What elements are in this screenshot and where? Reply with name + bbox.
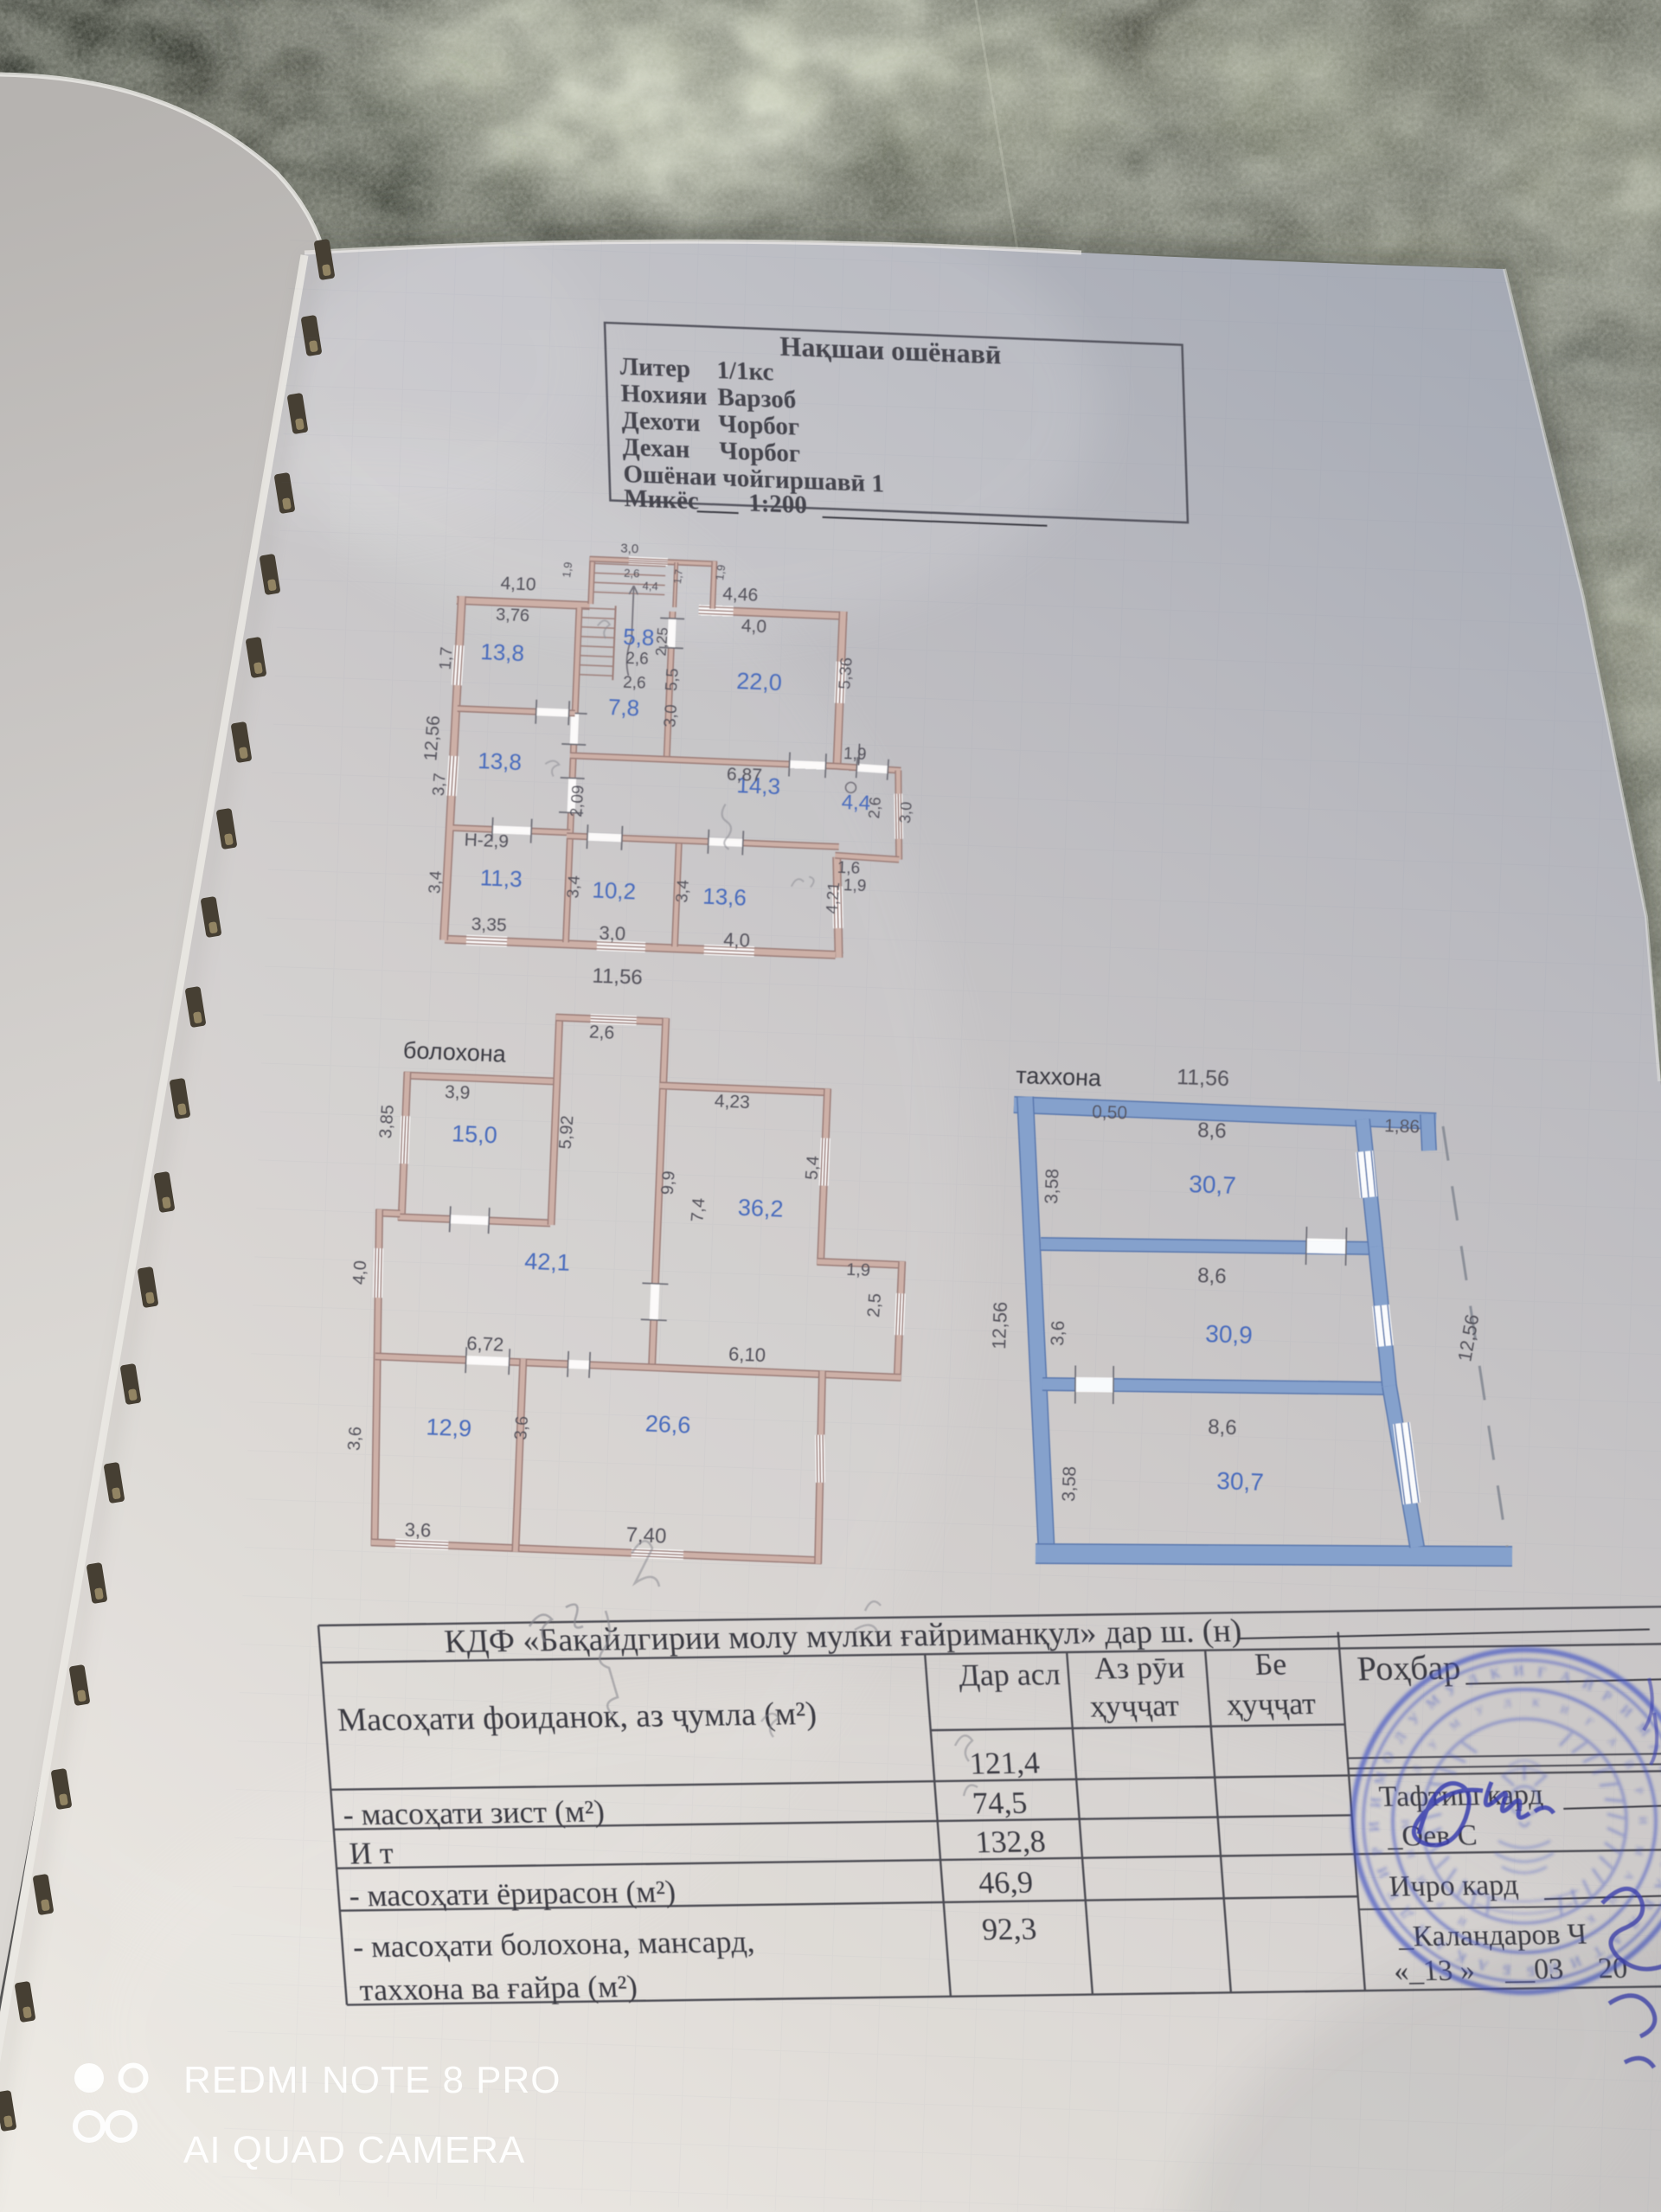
svg-text:6,72: 6,72	[466, 1332, 504, 1356]
svg-text:3,58: 3,58	[1059, 1466, 1080, 1503]
svg-text:26,6: 26,6	[645, 1411, 691, 1439]
svg-text:таххона ва ғайра (м²): таххона ва ғайра (м²)	[358, 1969, 638, 2007]
svg-text:13,8: 13,8	[480, 638, 525, 666]
svg-text:3,4: 3,4	[426, 869, 446, 894]
svg-text:74,5: 74,5	[972, 1786, 1029, 1821]
svg-text:6,10: 6,10	[728, 1343, 766, 1366]
svg-text:ҳуҷҷат: ҳуҷҷат	[1225, 1686, 1317, 1722]
svg-text:10,2: 10,2	[592, 876, 637, 904]
svg-text:3,58: 3,58	[1042, 1169, 1062, 1205]
svg-text:7,40: 7,40	[625, 1523, 667, 1548]
svg-text:1,6: 1,6	[837, 859, 860, 878]
svg-text:12,9: 12,9	[426, 1414, 472, 1441]
svg-text:11,3: 11,3	[479, 864, 523, 892]
svg-text:3,6: 3,6	[1048, 1320, 1068, 1346]
svg-text:11,56: 11,56	[1177, 1065, 1230, 1091]
svg-text:2,6: 2,6	[589, 1023, 615, 1043]
svg-text:AI QUAD CAMERA: AI QUAD CAMERA	[183, 2129, 525, 2171]
svg-text:К: К	[1532, 1696, 1541, 1709]
svg-text:12,56: 12,56	[420, 715, 444, 761]
svg-text:Ғ: Ғ	[1537, 1664, 1547, 1681]
svg-text:- масоҳати ёрирасон (м²): - масоҳати ёрирасон (м²)	[348, 1874, 677, 1913]
svg-text:Аз рӯи: Аз рӯи	[1093, 1650, 1185, 1685]
svg-text:36,2: 36,2	[737, 1195, 784, 1222]
svg-text:М: М	[1399, 1819, 1412, 1830]
svg-text:3,0: 3,0	[896, 801, 915, 824]
svg-text:И: И	[1513, 1662, 1524, 1679]
svg-text:И: И	[1365, 1821, 1382, 1832]
svg-text:1,9: 1,9	[843, 876, 867, 895]
svg-text:30,7: 30,7	[1216, 1467, 1265, 1496]
svg-text:2,6: 2,6	[623, 674, 646, 693]
svg-text:8,6: 8,6	[1197, 1119, 1227, 1143]
svg-text:6,87: 6,87	[727, 765, 763, 786]
svg-text:И: И	[1637, 1817, 1649, 1825]
svg-text:5,92: 5,92	[556, 1115, 578, 1150]
svg-text:2,6: 2,6	[625, 650, 649, 669]
svg-text:30,9: 30,9	[1205, 1320, 1254, 1349]
svg-text:92,3: 92,3	[981, 1911, 1038, 1946]
svg-text:7,8: 7,8	[607, 694, 639, 721]
svg-text:1,86: 1,86	[1384, 1116, 1421, 1137]
svg-text:3,35: 3,35	[471, 914, 507, 936]
svg-text:4,23: 4,23	[714, 1091, 750, 1112]
svg-text:Чорбог: Чорбог	[718, 410, 800, 441]
svg-text:9,9: 9,9	[658, 1170, 679, 1196]
svg-text:Микёс: Микёс	[624, 484, 700, 515]
svg-text:5,8: 5,8	[623, 624, 655, 651]
svg-text:121,4: 121,4	[968, 1745, 1041, 1780]
svg-text:Н-2,9: Н-2,9	[464, 830, 509, 852]
svg-text:Масоҳати фоиданок, аз ҷумла (: Масоҳати фоиданок, аз ҷумла (м²)	[337, 1696, 818, 1739]
svg-text:3,9: 3,9	[445, 1082, 471, 1103]
svg-text:132,8: 132,8	[974, 1824, 1047, 1859]
svg-text:3,85: 3,85	[376, 1104, 398, 1138]
svg-text:И т: И т	[348, 1836, 394, 1871]
svg-text:5,5: 5,5	[663, 668, 683, 692]
svg-text:3,76: 3,76	[496, 606, 530, 626]
svg-text:2,6: 2,6	[624, 567, 640, 580]
svg-text:42,1: 42,1	[524, 1248, 571, 1276]
svg-text:1:200: 1:200	[748, 490, 808, 520]
svg-text:ҳуҷҷат: ҳуҷҷат	[1088, 1688, 1180, 1723]
svg-text:3,0: 3,0	[661, 704, 681, 728]
svg-text:1,7: 1,7	[437, 646, 457, 670]
svg-text:13,6: 13,6	[702, 883, 747, 911]
svg-text:7,4: 7,4	[688, 1197, 709, 1222]
svg-text:Нохияи: Нохияи	[620, 380, 708, 411]
svg-text:Ичро кард: Ичро кард	[1388, 1869, 1519, 1903]
svg-text:3,0: 3,0	[620, 541, 639, 556]
svg-text:13,8: 13,8	[478, 747, 523, 775]
svg-text:4,21: 4,21	[824, 882, 844, 914]
svg-text:Дар асл: Дар асл	[958, 1657, 1061, 1693]
svg-text:1,9: 1,9	[713, 564, 728, 581]
svg-text:4,46: 4,46	[722, 584, 759, 606]
svg-text:таххона: таххона	[1016, 1062, 1103, 1091]
svg-text:15,0: 15,0	[452, 1120, 498, 1148]
svg-text:2,25: 2,25	[652, 627, 670, 657]
svg-text:4,10: 4,10	[500, 574, 536, 595]
svg-text:1,9: 1,9	[846, 1260, 871, 1280]
svg-text:4,0: 4,0	[723, 929, 751, 952]
svg-text:22,0: 22,0	[736, 668, 783, 696]
svg-text:5,36: 5,36	[836, 657, 856, 689]
svg-text:4,4: 4,4	[642, 580, 658, 593]
svg-text:3,4: 3,4	[673, 879, 693, 903]
svg-text:- масоҳати болохона, мансард,: - масоҳати болохона, мансард,	[351, 1924, 755, 1964]
svg-text:46,9: 46,9	[978, 1865, 1035, 1901]
svg-text:1,9: 1,9	[560, 561, 574, 579]
svg-text:Бе: Бе	[1254, 1646, 1288, 1681]
svg-text:30,7: 30,7	[1189, 1170, 1237, 1199]
svg-text:1,7: 1,7	[671, 568, 685, 585]
svg-text:болохона: болохона	[402, 1037, 507, 1068]
svg-text:3,6: 3,6	[511, 1415, 532, 1440]
svg-text:3,4: 3,4	[564, 875, 584, 899]
svg-text:12,56: 12,56	[988, 1301, 1011, 1350]
svg-text:1,9: 1,9	[843, 745, 867, 764]
svg-text:2,6: 2,6	[865, 797, 884, 819]
svg-text:4,0: 4,0	[741, 616, 766, 637]
svg-text:1/1кс: 1/1кс	[716, 356, 774, 387]
svg-text:3,0: 3,0	[599, 922, 626, 945]
svg-text:11,56: 11,56	[592, 965, 643, 990]
svg-text:3,7: 3,7	[430, 773, 450, 797]
svg-text:2,09: 2,09	[568, 785, 588, 817]
svg-text:3,6: 3,6	[404, 1518, 432, 1541]
svg-text:4,0: 4,0	[350, 1260, 370, 1285]
svg-text:3,6: 3,6	[344, 1426, 365, 1451]
svg-text:8,6: 8,6	[1197, 1264, 1227, 1288]
svg-text:Литер: Литер	[619, 353, 690, 383]
svg-text:2,5: 2,5	[864, 1292, 885, 1318]
svg-text:И: И	[1367, 1797, 1384, 1809]
svg-text:Чорбог: Чорбог	[719, 437, 801, 468]
svg-text:8,6: 8,6	[1208, 1415, 1237, 1439]
svg-text:5,4: 5,4	[802, 1155, 823, 1180]
svg-text:REDMI NOTE 8 PRO: REDMI NOTE 8 PRO	[183, 2059, 561, 2101]
svg-text:0,50: 0,50	[1092, 1102, 1128, 1123]
svg-text:- масоҳати зист (м²): - масоҳати зист (м²)	[342, 1793, 606, 1831]
svg-text:Дехан: Дехан	[622, 433, 690, 464]
svg-text:Варзоб: Варзоб	[717, 383, 797, 414]
svg-text:Дехоти: Дехоти	[621, 407, 701, 438]
